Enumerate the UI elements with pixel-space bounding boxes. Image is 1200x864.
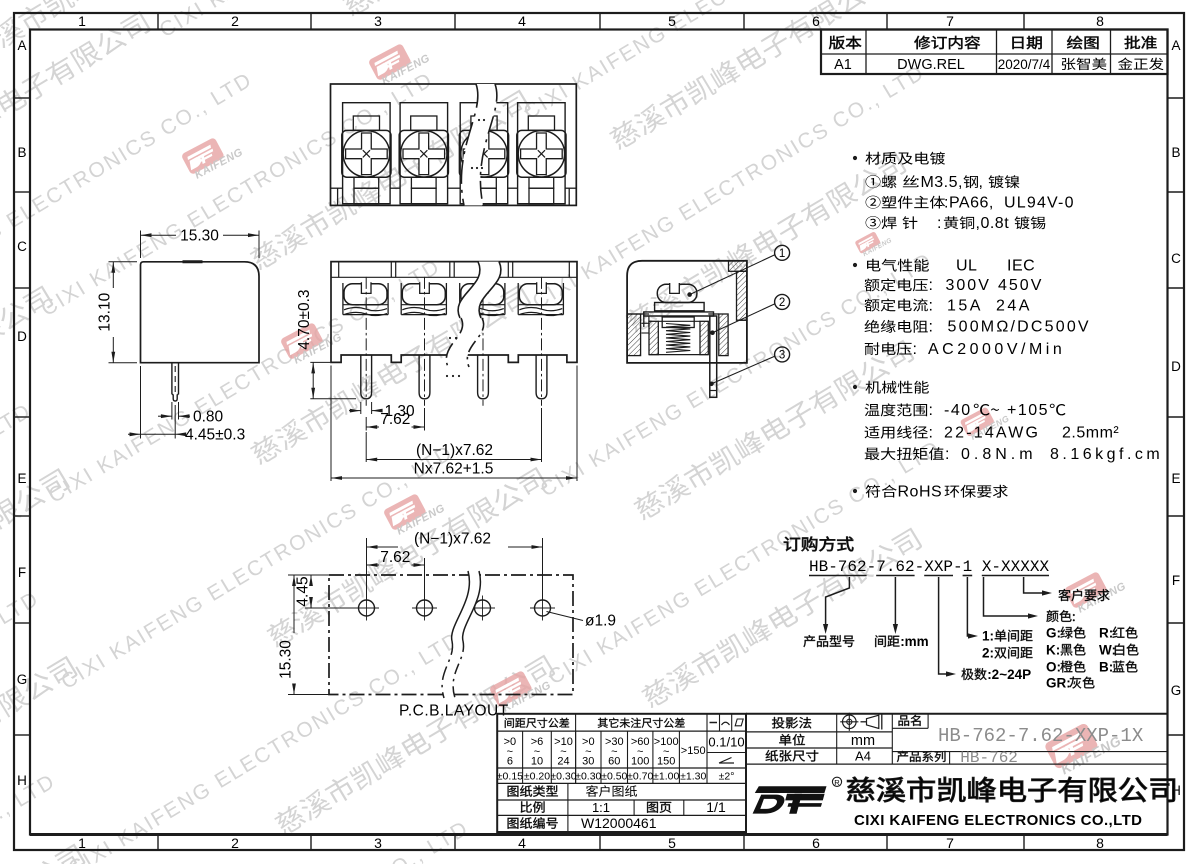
svg-text:AC2000V/Min: AC2000V/Min	[928, 341, 1065, 358]
svg-text:>150: >150	[681, 745, 706, 757]
svg-text::: :	[929, 425, 934, 442]
svg-text:1:: 1:	[982, 629, 994, 644]
svg-text:4.45: 4.45	[295, 576, 312, 606]
svg-text:F: F	[1172, 573, 1180, 588]
svg-text:,0.8t: ,0.8t	[976, 215, 1010, 232]
svg-text:±0.30: ±0.30	[575, 771, 601, 783]
svg-text:6: 6	[812, 13, 820, 29]
svg-text:±0.30: ±0.30	[550, 771, 576, 783]
svg-text:GR:: GR:	[1046, 676, 1071, 691]
svg-text:ø1.9: ø1.9	[585, 613, 616, 630]
svg-text:Nx7.62+1.5: Nx7.62+1.5	[414, 461, 494, 478]
svg-text:UL: UL	[956, 258, 977, 275]
svg-text:±0.20: ±0.20	[524, 771, 550, 783]
svg-text:2:: 2:	[982, 646, 994, 661]
svg-text::: :	[937, 215, 942, 232]
svg-text:±0.50: ±0.50	[601, 771, 627, 783]
svg-text:W12000461: W12000461	[581, 815, 657, 831]
svg-text:8.16kgf.cm: 8.16kgf.cm	[1050, 446, 1163, 463]
svg-text::: :	[929, 297, 934, 314]
svg-text:+105: +105	[1007, 402, 1049, 419]
svg-text:HB-762-7.62-XXP-1 X-XXXXX: HB-762-7.62-XXP-1 X-XXXXX	[809, 558, 1049, 576]
svg-text:CIXI KAIFENG ELECTRONICS CO.,L: CIXI KAIFENG ELECTRONICS CO.,LTD	[854, 812, 1142, 829]
svg-text:2: 2	[231, 13, 239, 29]
svg-text:8: 8	[1096, 13, 1104, 29]
svg-text:DWG.REL: DWG.REL	[897, 57, 965, 73]
svg-text:±2°: ±2°	[719, 771, 735, 783]
svg-text:IEC: IEC	[1007, 258, 1035, 275]
svg-text:15.30: 15.30	[180, 227, 219, 244]
svg-text:H: H	[17, 773, 27, 788]
svg-text:3: 3	[374, 835, 382, 851]
svg-text:6: 6	[507, 756, 513, 768]
svg-text:1/1: 1/1	[706, 799, 726, 815]
svg-text:F: F	[18, 565, 26, 580]
svg-text::mm: :mm	[900, 634, 929, 649]
svg-text:C: C	[1171, 251, 1181, 266]
svg-text:7: 7	[946, 835, 954, 851]
svg-text:G: G	[17, 672, 28, 687]
svg-text:500MΩ/DC500V: 500MΩ/DC500V	[948, 319, 1091, 336]
svg-text:8: 8	[1096, 835, 1104, 851]
svg-text::2~24P: :2~24P	[987, 667, 1031, 682]
svg-text::: :	[929, 402, 934, 419]
svg-text:C: C	[17, 239, 27, 254]
svg-text:A: A	[1171, 38, 1180, 53]
svg-text:0.1/10: 0.1/10	[708, 735, 744, 750]
svg-text:A4: A4	[855, 749, 871, 764]
svg-text:RoHS: RoHS	[898, 484, 943, 501]
svg-text:7.62: 7.62	[380, 411, 410, 428]
svg-text:4.70±0.3: 4.70±0.3	[296, 289, 313, 349]
svg-text:24A: 24A	[996, 297, 1032, 314]
svg-text:-40: -40	[944, 402, 972, 419]
svg-text:,: ,	[979, 174, 984, 191]
svg-text:2: 2	[779, 297, 785, 309]
svg-text:W:: W:	[1099, 643, 1116, 658]
svg-text:A1: A1	[834, 57, 852, 73]
svg-text:(N−1)x7.62: (N−1)x7.62	[416, 442, 493, 459]
svg-text:15.30: 15.30	[278, 640, 295, 679]
svg-text:2: 2	[231, 835, 239, 851]
svg-text:±1.30: ±1.30	[680, 771, 706, 783]
svg-text:3: 3	[779, 350, 785, 362]
svg-text:150: 150	[657, 756, 675, 768]
svg-text:±0.15: ±0.15	[497, 771, 523, 783]
svg-text:G:: G:	[1046, 626, 1061, 641]
svg-text:7.62: 7.62	[380, 549, 410, 566]
svg-text:4: 4	[518, 835, 526, 851]
svg-text:13.10: 13.10	[97, 292, 114, 331]
svg-text:1: 1	[78, 13, 86, 29]
svg-text:24: 24	[557, 756, 569, 768]
svg-text:3: 3	[374, 13, 382, 29]
svg-text:K:: K:	[1046, 643, 1060, 658]
svg-text::: :	[929, 277, 934, 294]
svg-text:5: 5	[668, 835, 676, 851]
svg-text:2020/7/4: 2020/7/4	[998, 57, 1051, 72]
svg-text:10: 10	[531, 756, 543, 768]
svg-text:R:: R:	[1099, 626, 1113, 641]
svg-text:30: 30	[582, 756, 594, 768]
svg-text:P.C.B.LAYOUT: P.C.B.LAYOUT	[399, 703, 509, 720]
svg-text:D: D	[1171, 359, 1181, 374]
svg-text:4: 4	[518, 13, 526, 29]
svg-text:B: B	[1171, 145, 1180, 160]
svg-text::PA66,: :PA66,	[944, 195, 994, 212]
svg-text:4.45±0.3: 4.45±0.3	[185, 426, 245, 443]
svg-text:D: D	[17, 329, 27, 344]
svg-text:E: E	[1171, 471, 1180, 486]
svg-text:(N−1)x7.62: (N−1)x7.62	[414, 531, 491, 548]
svg-text:B:: B:	[1099, 660, 1113, 675]
svg-text:HB-762: HB-762	[960, 749, 1018, 767]
svg-text::: :	[913, 341, 918, 358]
svg-text:300V: 300V	[946, 277, 991, 294]
svg-text:2.5mm²: 2.5mm²	[1062, 425, 1119, 442]
svg-text:A: A	[17, 38, 26, 53]
svg-text::M3.5,: :M3.5,	[916, 174, 963, 191]
svg-text:B: B	[17, 145, 26, 160]
svg-text:22-14AWG: 22-14AWG	[944, 425, 1040, 442]
svg-text:0.8N.m: 0.8N.m	[961, 446, 1037, 463]
svg-text:G: G	[1171, 683, 1182, 698]
svg-text:100: 100	[631, 756, 649, 768]
svg-text:15A: 15A	[947, 297, 983, 314]
svg-text:mm: mm	[851, 733, 875, 749]
svg-text:O:: O:	[1046, 660, 1061, 675]
svg-text:1:1: 1:1	[592, 800, 610, 815]
svg-text:450V: 450V	[998, 277, 1043, 294]
svg-text:5: 5	[668, 13, 676, 29]
svg-text:HB-762-7.62-XXP-1X: HB-762-7.62-XXP-1X	[938, 725, 1144, 747]
svg-text::: :	[929, 319, 934, 336]
svg-text:1: 1	[78, 835, 86, 851]
svg-text:E: E	[17, 471, 26, 486]
svg-text:1: 1	[779, 248, 785, 260]
svg-text:0.80: 0.80	[193, 408, 224, 425]
svg-text::: :	[945, 446, 950, 463]
svg-text:7: 7	[946, 13, 954, 29]
svg-text:±1.00: ±1.00	[653, 771, 679, 783]
svg-text:UL94V-0: UL94V-0	[1004, 195, 1075, 212]
svg-text:R: R	[834, 778, 840, 787]
svg-text:60: 60	[608, 756, 620, 768]
svg-text:6: 6	[812, 835, 820, 851]
svg-text:±0.70: ±0.70	[627, 771, 653, 783]
